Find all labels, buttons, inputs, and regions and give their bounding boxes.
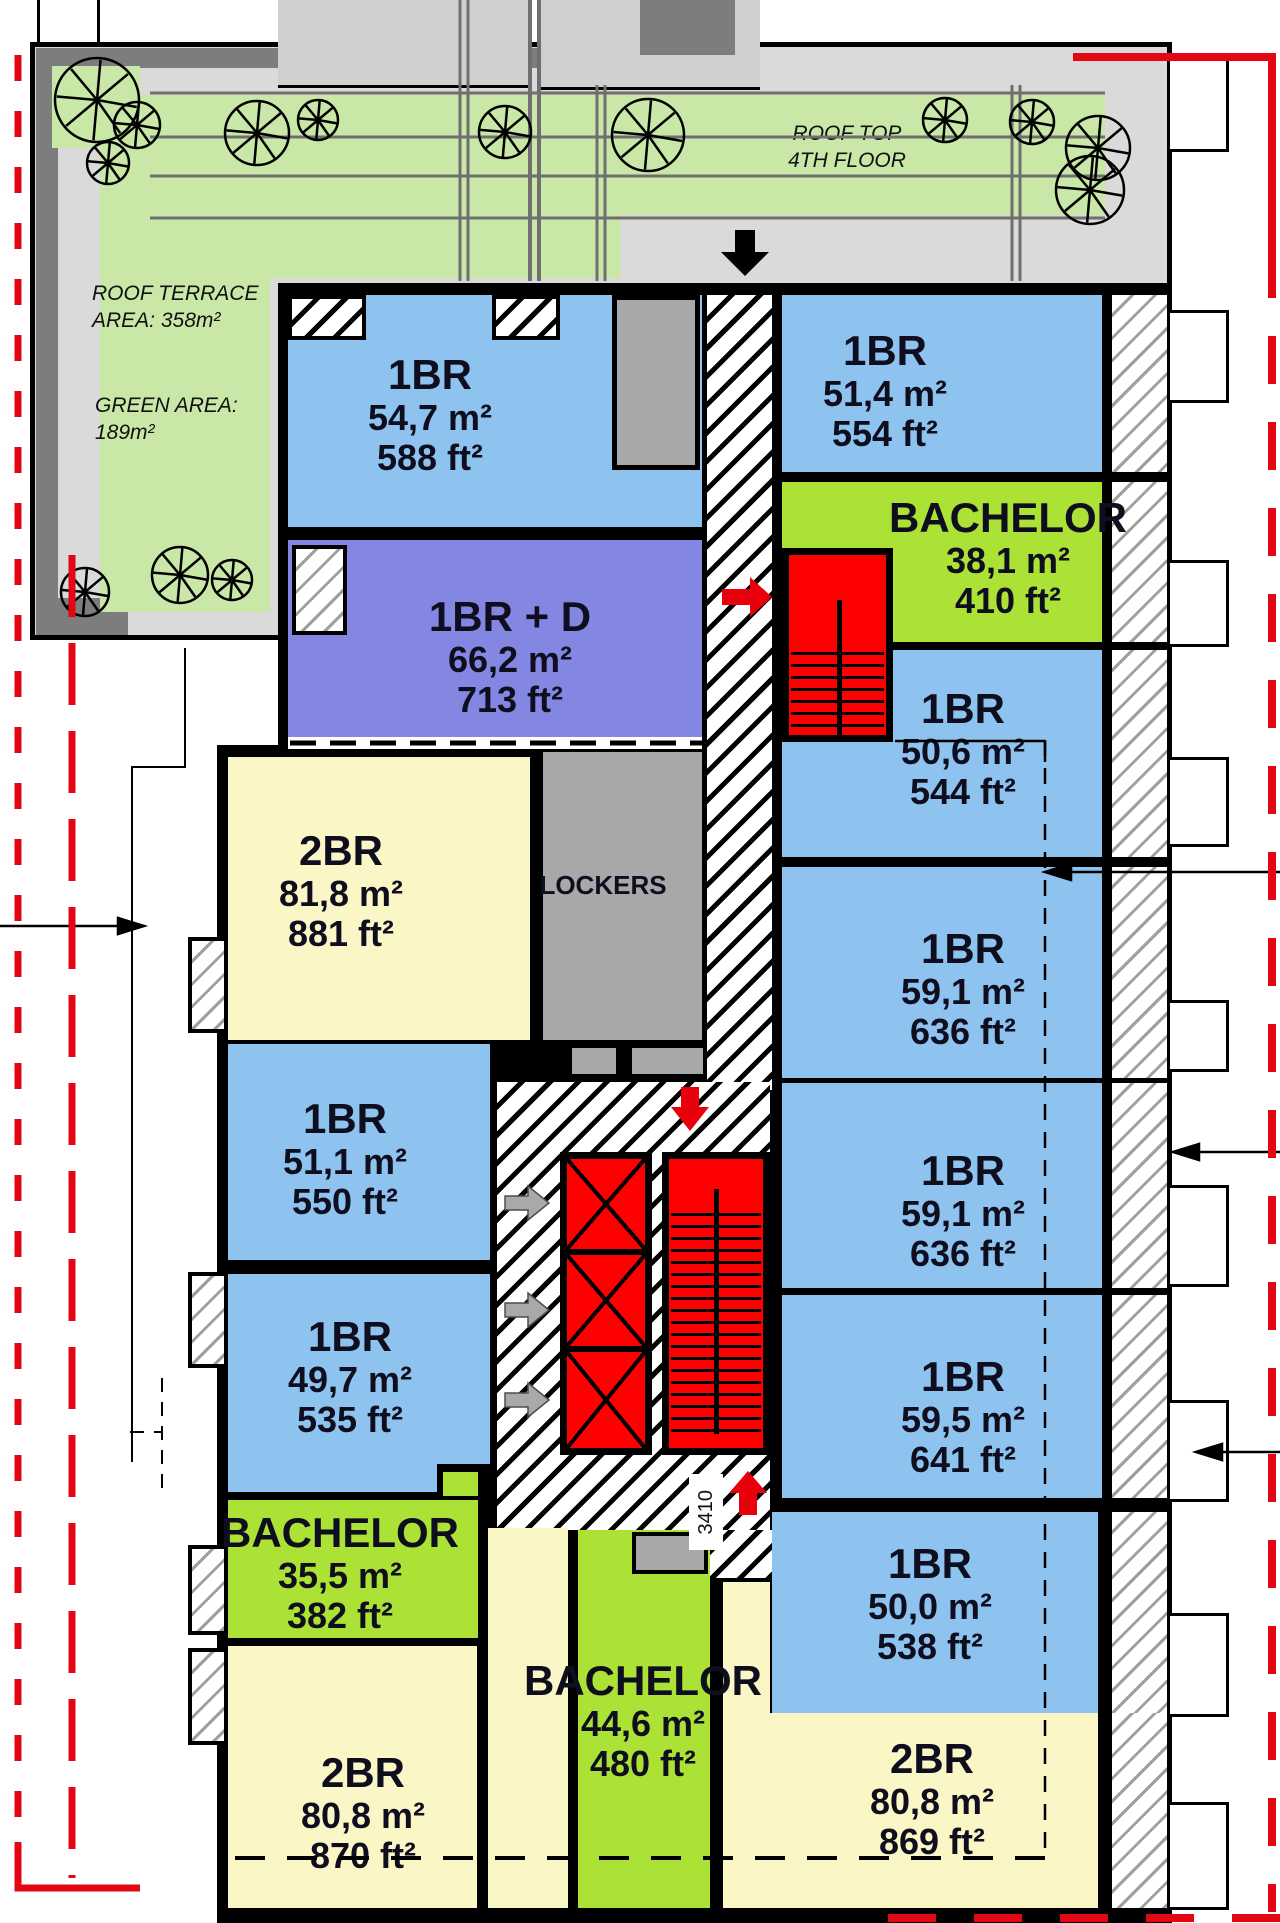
balcony-east-1 (1112, 295, 1167, 472)
label-unit-1br-51-1: 1BR51,1 m²550 ft² (205, 1096, 485, 1222)
roof-structure-dark (640, 0, 735, 55)
terrace-skylight (37, 0, 100, 45)
label-unit-1br-50-0: 1BR50,0 m²538 ft² (790, 1541, 1070, 1667)
balcony-east-6 (1112, 1295, 1167, 1498)
elevator-3 (567, 1352, 645, 1448)
label-unit-2br-870: 2BR80,8 m²870 ft² (223, 1750, 503, 1876)
green-area-line1: GREEN AREA: (95, 392, 238, 419)
unit-1br-d-66-balcony (292, 545, 347, 635)
balcony-west-4 (188, 1648, 228, 1745)
label-unit-2br-869: 2BR80,8 m²869 ft² (792, 1736, 1072, 1862)
label-unit-bachelor-38: BACHELOR38,1 m²410 ft² (788, 495, 1228, 621)
label-unit-2br-81: 2BR81,8 m²881 ft² (201, 828, 481, 954)
window-bay-2 (1167, 310, 1229, 403)
roof-structure-left (278, 0, 530, 88)
label-unit-bachelor-35: BACHELOR35,5 m²382 ft² (130, 1510, 550, 1636)
window-bay-8 (1167, 1613, 1229, 1717)
label-unit-1br-54: 1BR54,7 m²588 ft² (290, 352, 570, 478)
label-lockers: LOCKERS (538, 870, 668, 901)
balcony-east-8 (1112, 1713, 1167, 1908)
roof-terrace-line2: AREA: 358m² (92, 307, 258, 334)
elevator-bank (560, 1152, 652, 1455)
stair-main (662, 1152, 770, 1455)
floor-plan: ROOF TERRACE AREA: 358m² GREEN AREA: 189… (0, 0, 1280, 1923)
elevator-1 (567, 1159, 645, 1255)
window-bay-9 (1167, 1802, 1229, 1910)
stair-dimension-box: 3410 (689, 1474, 723, 1550)
roof-top-line1: ROOF TOP (747, 120, 947, 147)
label-unit-1br-d-66: 1BR + D66,2 m²713 ft² (350, 594, 670, 720)
window-bay-6 (1167, 1185, 1229, 1287)
window-bay-7 (1167, 1400, 1229, 1502)
label-unit-1br-59-5: 1BR59,5 m²641 ft² (823, 1354, 1103, 1480)
green-area-line2: 189m² (95, 419, 238, 446)
terrace-green-patch (52, 66, 140, 148)
stair-main-treads (671, 1204, 761, 1434)
unit-1br-d-66-window-wall (288, 737, 702, 749)
site-lines-west (130, 648, 185, 1492)
window-bay-5 (1167, 1000, 1229, 1072)
balcony-east-4 (1112, 867, 1167, 1078)
roof-terrace-line1: ROOF TERRACE (92, 280, 258, 307)
storage-small-1 (568, 1044, 620, 1078)
label-unit-1br-49-7: 1BR49,7 m²535 ft² (210, 1314, 490, 1440)
green-area-label: GREEN AREA: 189m² (95, 392, 238, 446)
window-bay-1 (1167, 57, 1229, 152)
unit-bachelor-35-step (443, 1472, 478, 1496)
unit-1br-54-balcony-left (288, 295, 366, 340)
roof-terrace-label: ROOF TERRACE AREA: 358m² (92, 280, 258, 334)
storage-small-2 (628, 1044, 707, 1078)
window-bay-4 (1167, 757, 1229, 847)
label-unit-1br-51-4: 1BR51,4 m²554 ft² (745, 328, 1025, 454)
balcony-east-5 (1112, 1083, 1167, 1288)
label-unit-1br-59-1b: 1BR59,1 m²636 ft² (823, 1148, 1103, 1274)
balcony-east-3 (1112, 650, 1167, 857)
balcony-east-7 (1112, 1512, 1167, 1713)
storage-north (612, 295, 700, 470)
elevator-2 (567, 1255, 645, 1351)
roof-top-line2: 4TH FLOOR (747, 147, 947, 174)
stair-dimension-text: 3410 (695, 1490, 718, 1535)
label-unit-1br-50-6: 1BR50,6 m²544 ft² (823, 686, 1103, 812)
unit-1br-54-balcony-right (492, 295, 560, 340)
terrace-green-main (100, 95, 620, 278)
unit-1br-49-7-step (228, 1464, 437, 1492)
label-unit-1br-59-1a: 1BR59,1 m²636 ft² (823, 926, 1103, 1052)
roof-top-label: ROOF TOP 4TH FLOOR (747, 120, 947, 174)
